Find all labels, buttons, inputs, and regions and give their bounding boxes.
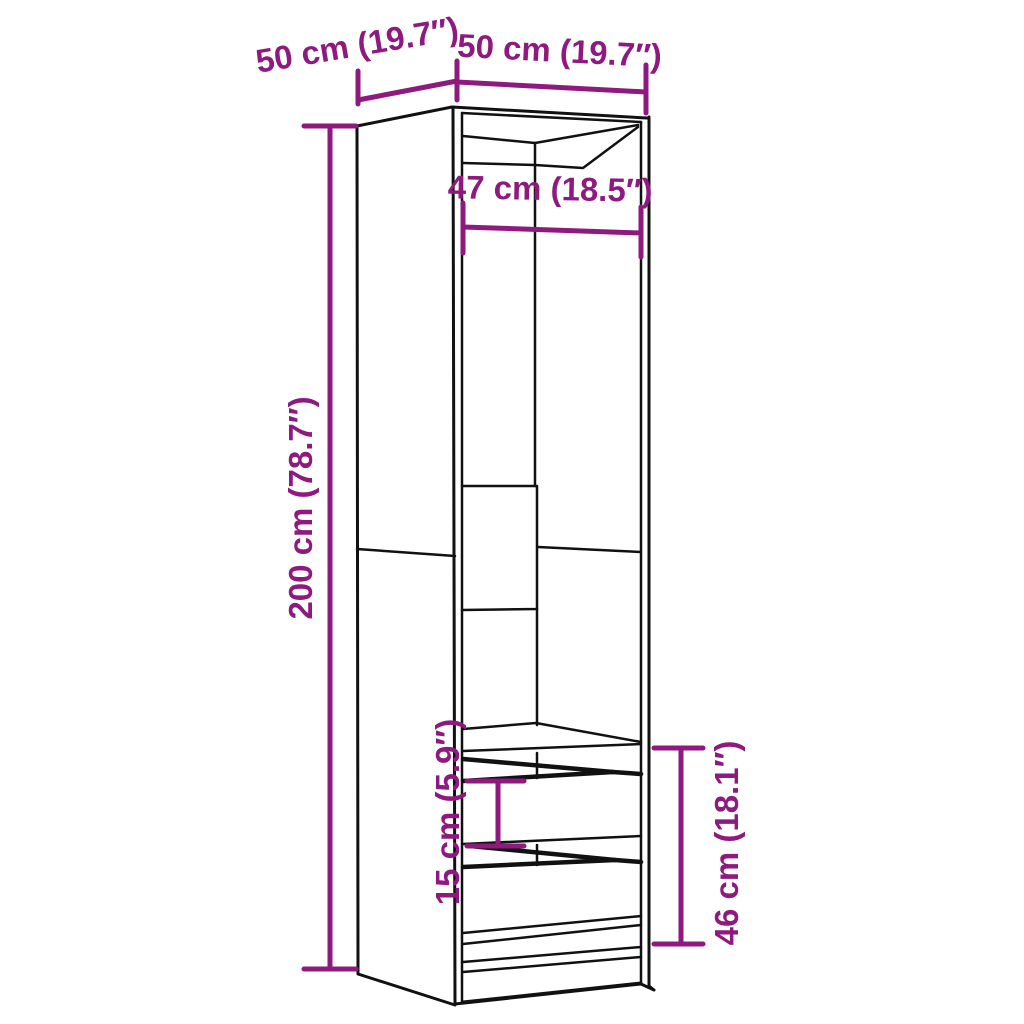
drawer-height-dimension: 15 cm (5.9″) bbox=[429, 719, 524, 905]
plinth-bottom-edge bbox=[463, 983, 641, 1002]
drawer-height-dimension-line bbox=[467, 781, 524, 846]
dimension-annotations: 50 cm (19.7″) 50 cm (19.7″) 47 cm (18.5″… bbox=[253, 10, 745, 969]
depth-dimension: 50 cm (19.7″) bbox=[253, 10, 461, 104]
inner-width-dimension-label: 47 cm (18.5″) bbox=[448, 168, 653, 209]
drawer2-front-bottom-edge bbox=[463, 916, 641, 933]
inner-width-dimension: 47 cm (18.5″) bbox=[448, 168, 653, 257]
back-panel-joint-seam bbox=[538, 547, 641, 552]
top-back-edge bbox=[463, 127, 638, 168]
dimension-diagram: 50 cm (19.7″) 50 cm (19.7″) 47 cm (18.5″… bbox=[0, 0, 1024, 1024]
depth-dimension-line bbox=[358, 61, 457, 104]
wardrobe-diagram-canvas: 50 cm (19.7″) 50 cm (19.7″) 47 cm (18.5″… bbox=[0, 0, 1024, 1024]
height-dimension: 200 cm (78.7″) bbox=[282, 126, 356, 969]
drawer-section-dimension-line bbox=[654, 748, 703, 944]
inner-width-dimension-line bbox=[463, 203, 641, 257]
wardrobe-drawing bbox=[357, 107, 654, 1005]
height-dimension-label: 200 cm (78.7″) bbox=[282, 396, 319, 619]
shelf-top-surface bbox=[463, 723, 641, 742]
shelf-front-edge bbox=[463, 744, 641, 751]
drawer-height-dimension-label: 15 cm (5.9″) bbox=[429, 719, 466, 905]
width-dimension: 50 cm (19.7″) bbox=[456, 27, 662, 113]
width-dimension-label: 50 cm (19.7″) bbox=[456, 27, 662, 75]
left-panel-joint-seam bbox=[357, 549, 455, 556]
base-interior-edge bbox=[463, 925, 641, 944]
drawer2-front-top-edge bbox=[463, 860, 641, 867]
drawer1-front-bottom-edge bbox=[463, 836, 641, 844]
back-panel-overlap-rect bbox=[462, 486, 537, 610]
width-dimension-line bbox=[457, 65, 646, 113]
drawer-section-dimension-label: 46 cm (18.1″) bbox=[708, 741, 745, 946]
top-panel-underside bbox=[463, 125, 638, 143]
drawer-section-dimension: 46 cm (18.1″) bbox=[654, 741, 745, 946]
